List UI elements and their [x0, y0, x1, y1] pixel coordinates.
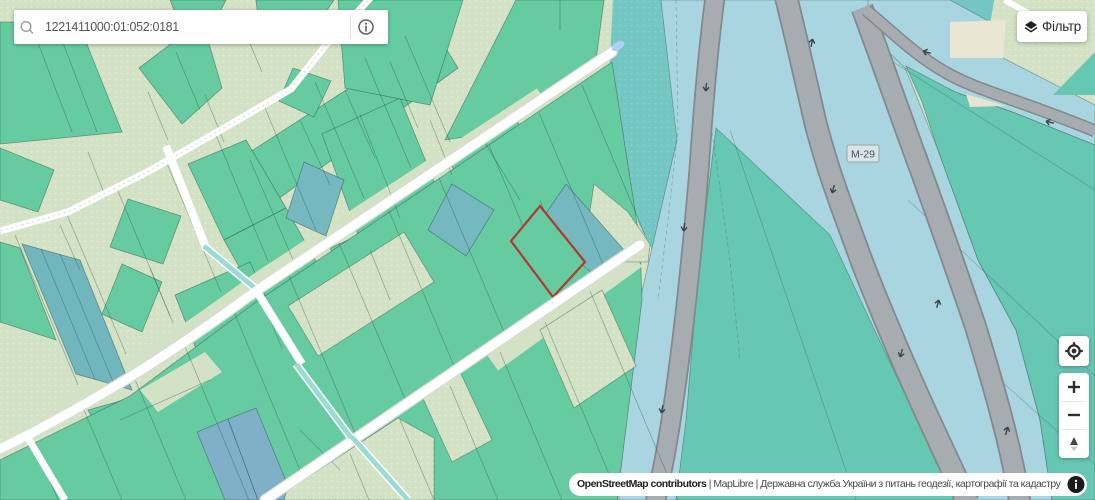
svg-text:М-29: М-29: [851, 149, 875, 161]
